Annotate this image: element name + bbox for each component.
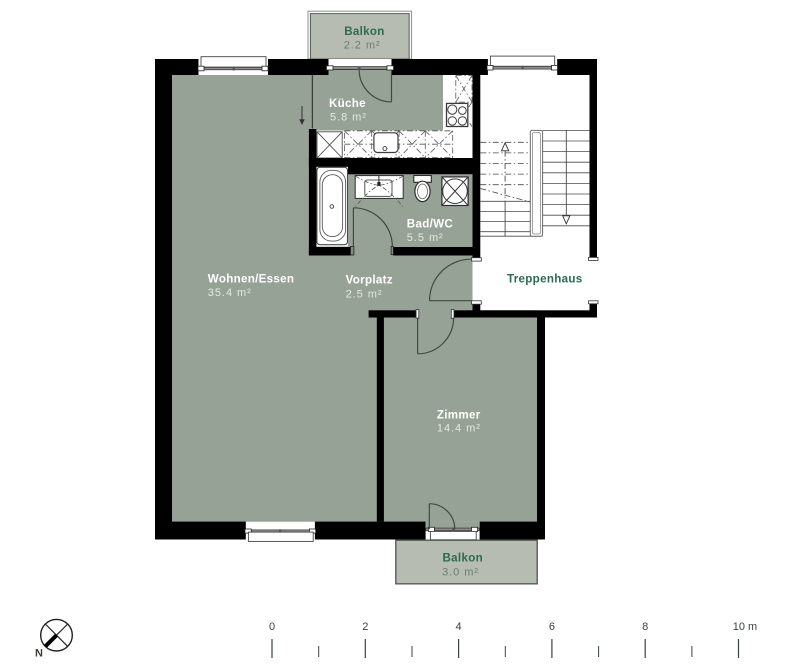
svg-text:5.8 m²: 5.8 m² — [330, 112, 367, 124]
svg-text:3.0 m²: 3.0 m² — [442, 567, 479, 579]
svg-text:Balkon: Balkon — [344, 25, 384, 38]
svg-text:6: 6 — [549, 621, 555, 633]
svg-text:2.5 m²: 2.5 m² — [346, 288, 383, 300]
svg-text:N: N — [35, 648, 43, 660]
svg-text:0: 0 — [269, 621, 275, 633]
svg-text:8: 8 — [642, 621, 648, 633]
svg-text:Vorplatz: Vorplatz — [346, 273, 393, 286]
svg-text:5.5 m²: 5.5 m² — [407, 232, 444, 244]
svg-text:14.4 m²: 14.4 m² — [437, 422, 481, 434]
svg-text:2.2 m²: 2.2 m² — [344, 39, 381, 51]
svg-text:Küche: Küche — [329, 97, 366, 110]
svg-text:2: 2 — [362, 621, 368, 633]
svg-text:Wohnen/Essen: Wohnen/Essen — [208, 273, 294, 286]
svg-text:10 m: 10 m — [733, 621, 757, 633]
svg-text:Bad/WC: Bad/WC — [407, 217, 454, 230]
svg-text:Treppenhaus: Treppenhaus — [507, 272, 582, 285]
svg-text:Zimmer: Zimmer — [437, 409, 481, 422]
svg-text:4: 4 — [456, 621, 462, 633]
svg-text:35.4 m²: 35.4 m² — [208, 287, 252, 299]
svg-text:Balkon: Balkon — [443, 552, 483, 565]
